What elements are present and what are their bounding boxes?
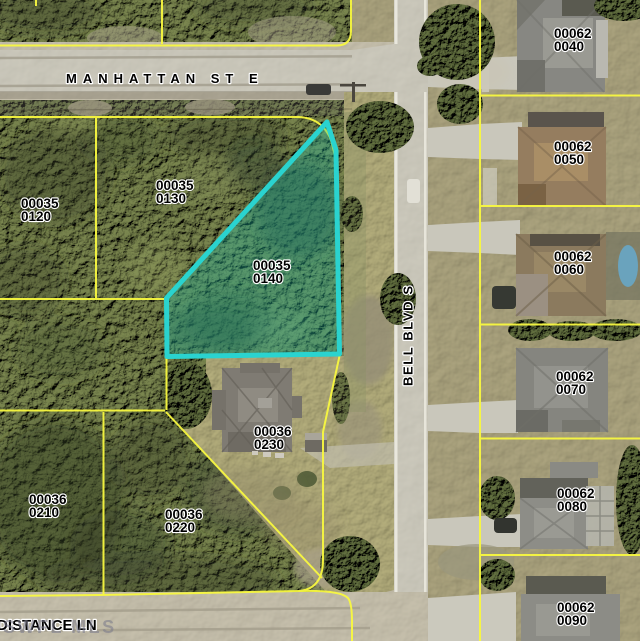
svg-text:0090: 0090 <box>557 613 587 628</box>
svg-text:0210: 0210 <box>29 505 59 520</box>
svg-text:BELL BLVD S: BELL BLVD S <box>401 284 416 386</box>
svg-text:SWFL MLS: SWFL MLS <box>3 617 117 637</box>
svg-text:0070: 0070 <box>556 382 586 397</box>
svg-text:0140: 0140 <box>253 271 283 286</box>
svg-text:0060: 0060 <box>554 262 584 277</box>
svg-text:0080: 0080 <box>557 499 587 514</box>
svg-text:0130: 0130 <box>156 191 186 206</box>
svg-text:MANHATTAN ST E: MANHATTAN ST E <box>66 71 264 86</box>
svg-text:0220: 0220 <box>165 520 195 535</box>
svg-text:0120: 0120 <box>21 209 51 224</box>
svg-text:0050: 0050 <box>554 152 584 167</box>
svg-text:0040: 0040 <box>554 39 584 54</box>
svg-text:0230: 0230 <box>254 437 284 452</box>
